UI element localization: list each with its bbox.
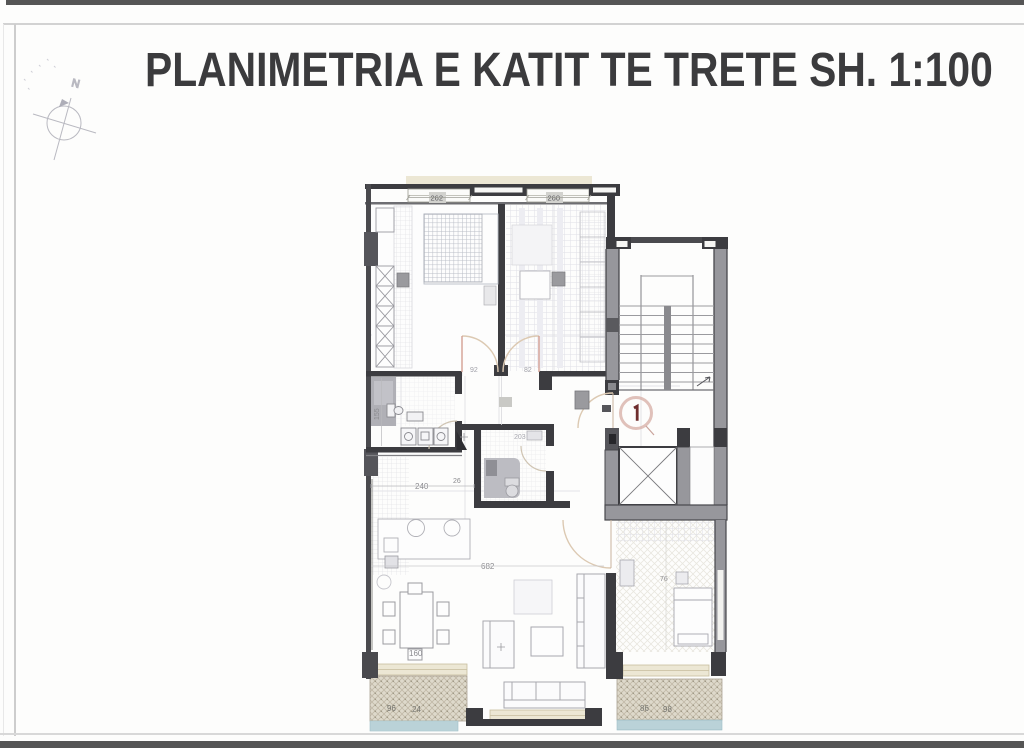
svg-text:260: 260 [548,194,561,203]
svg-text:160: 160 [409,649,423,658]
svg-text:92: 92 [470,367,478,374]
svg-text:98: 98 [663,705,672,714]
svg-text:155: 155 [374,408,381,420]
svg-text:203: 203 [514,434,526,441]
svg-text:240: 240 [415,482,429,491]
svg-text:82: 82 [524,367,532,374]
svg-text:24: 24 [412,705,421,714]
svg-text:262: 262 [431,194,444,203]
svg-text:76: 76 [660,576,668,583]
svg-text:86: 86 [640,704,649,713]
svg-text:96: 96 [387,704,396,713]
svg-text:26: 26 [453,478,461,485]
svg-text:N: N [70,77,81,91]
svg-text:682: 682 [481,562,495,571]
